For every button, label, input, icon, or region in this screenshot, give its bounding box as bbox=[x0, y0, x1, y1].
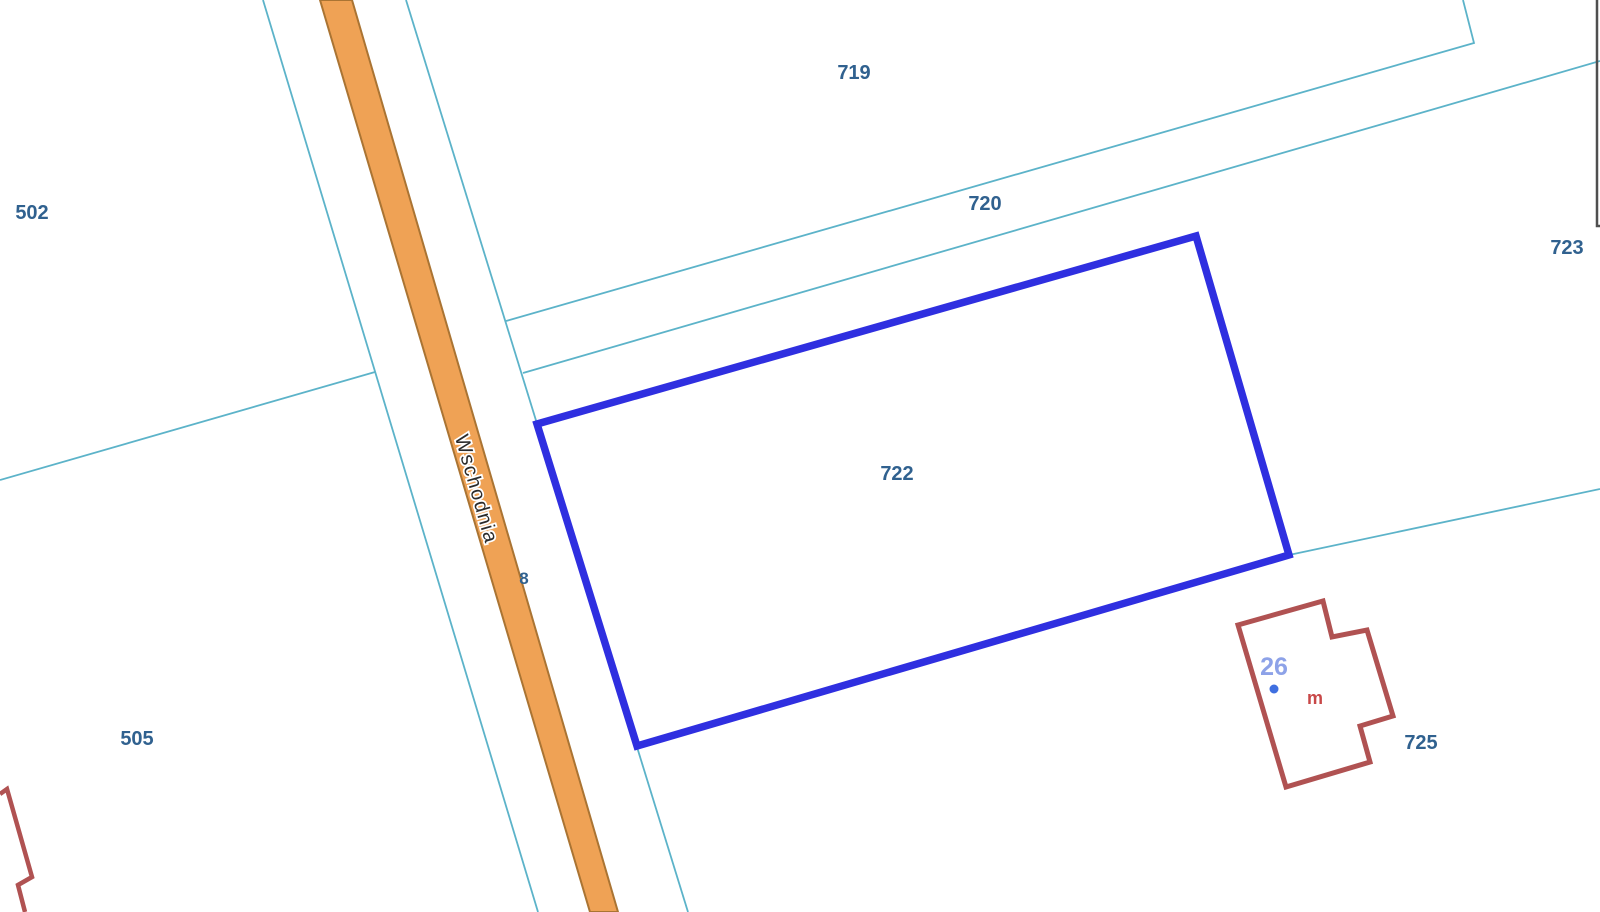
building-type-label: m bbox=[1307, 688, 1323, 708]
parcel-label-720: 720 bbox=[968, 193, 1001, 215]
parcel-label-722: 722 bbox=[880, 463, 913, 485]
parcel-label-723: 723 bbox=[1550, 237, 1583, 259]
building-sw-partial-outline bbox=[0, 789, 32, 912]
parcel-label-8-partial: 8 bbox=[519, 569, 528, 588]
boundary-719-720 bbox=[506, 0, 1474, 321]
parcel-boundaries bbox=[0, 0, 1600, 912]
address-point-dot bbox=[1270, 685, 1279, 694]
parcel-label-719: 719 bbox=[837, 62, 870, 84]
boundary-502-505 bbox=[0, 372, 375, 480]
map-viewport: Wschodnia 719 720 722 723 725 502 505 8 … bbox=[0, 0, 1600, 912]
parcel-label-505: 505 bbox=[120, 728, 153, 750]
boundary-720-723 bbox=[523, 61, 1600, 373]
boundary-723-725 bbox=[1289, 489, 1600, 555]
parcel-label-502: 502 bbox=[15, 202, 48, 224]
boundary-road-west bbox=[263, 0, 538, 912]
cadastral-map[interactable]: Wschodnia 719 720 722 723 725 502 505 8 … bbox=[0, 0, 1600, 912]
parcel-label-725: 725 bbox=[1404, 732, 1437, 754]
parcel-722-highlight[interactable] bbox=[537, 236, 1289, 746]
house-number-label: 26 bbox=[1260, 653, 1288, 681]
